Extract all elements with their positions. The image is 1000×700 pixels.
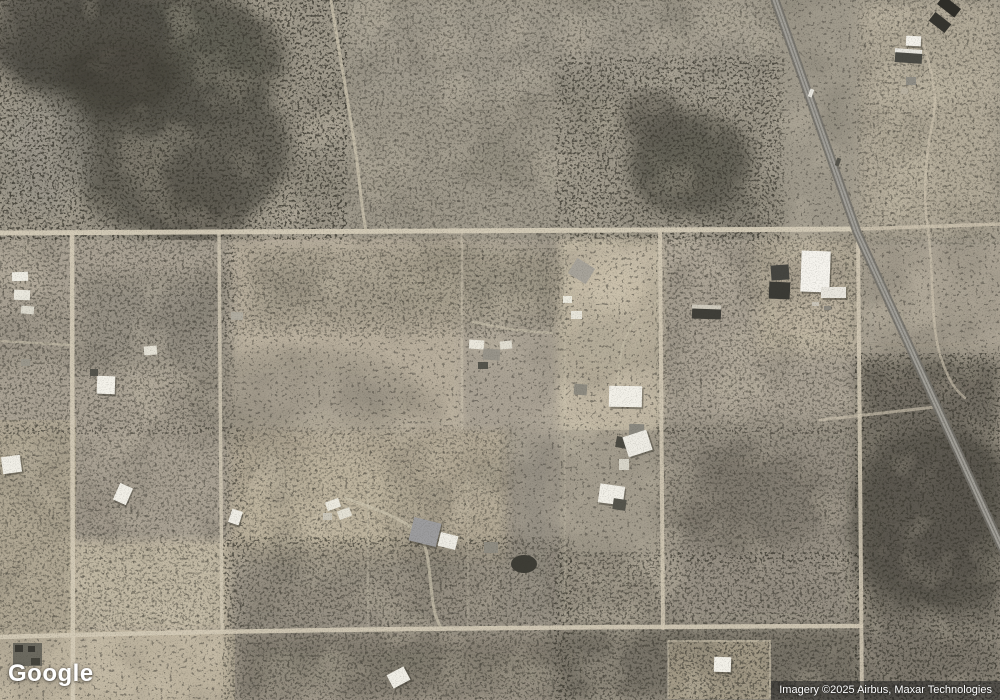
sensor-grain (0, 0, 1000, 700)
satellite-imagery (0, 0, 1000, 700)
attribution-text: Imagery ©2025 Airbus, Maxar Technologies (779, 684, 992, 696)
google-logo[interactable]: Google (8, 660, 94, 688)
attribution-bar: Imagery ©2025 Airbus, Maxar Technologies (771, 681, 1000, 700)
map-viewport[interactable]: Google Imagery ©2025 Airbus, Maxar Techn… (0, 0, 1000, 700)
